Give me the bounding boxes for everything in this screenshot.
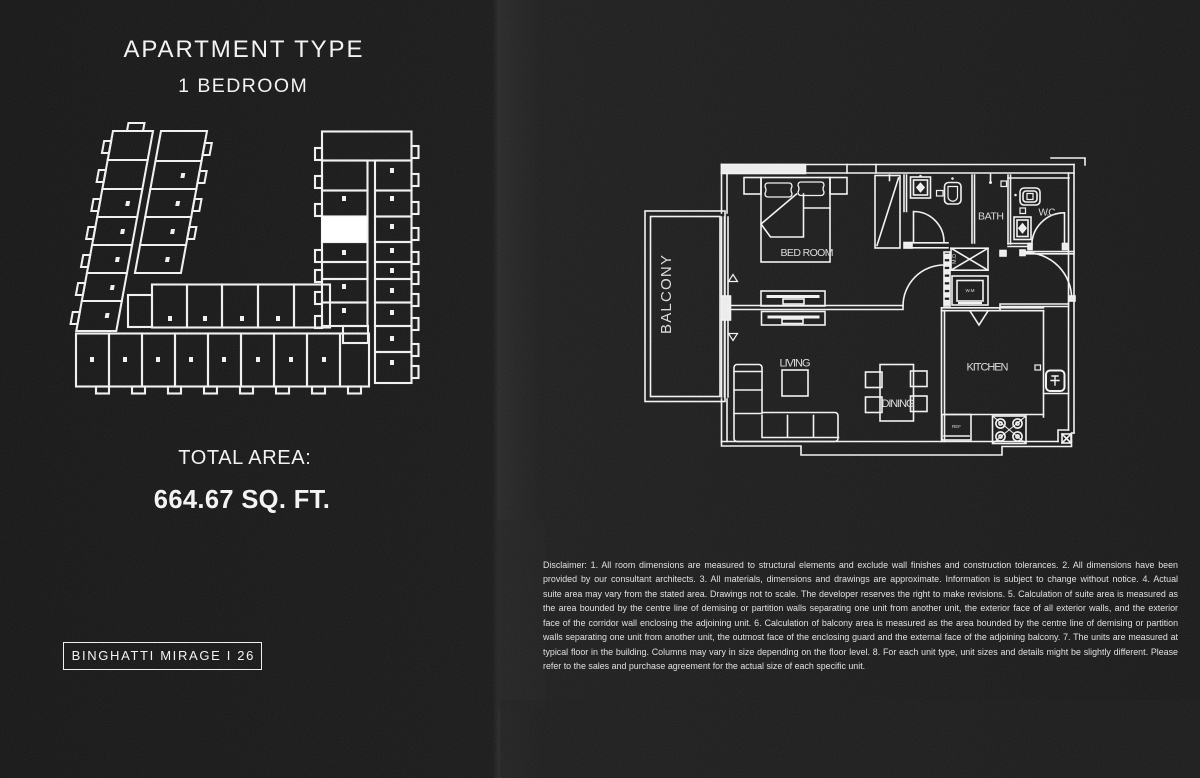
svg-text:BALCONY: BALCONY xyxy=(658,254,675,334)
svg-text:W.C: W.C xyxy=(1039,208,1056,219)
svg-text:REF: REF xyxy=(952,424,961,429)
svg-text:KITCHEN: KITCHEN xyxy=(967,362,1009,374)
svg-text:BATH: BATH xyxy=(978,211,1004,223)
svg-text:M.D: M.D xyxy=(952,254,958,264)
svg-text:DINING: DINING xyxy=(882,398,915,410)
svg-text:BED ROOM: BED ROOM xyxy=(781,247,834,259)
svg-text:W.M: W.M xyxy=(966,288,975,293)
svg-text:LIVING: LIVING xyxy=(780,358,811,370)
